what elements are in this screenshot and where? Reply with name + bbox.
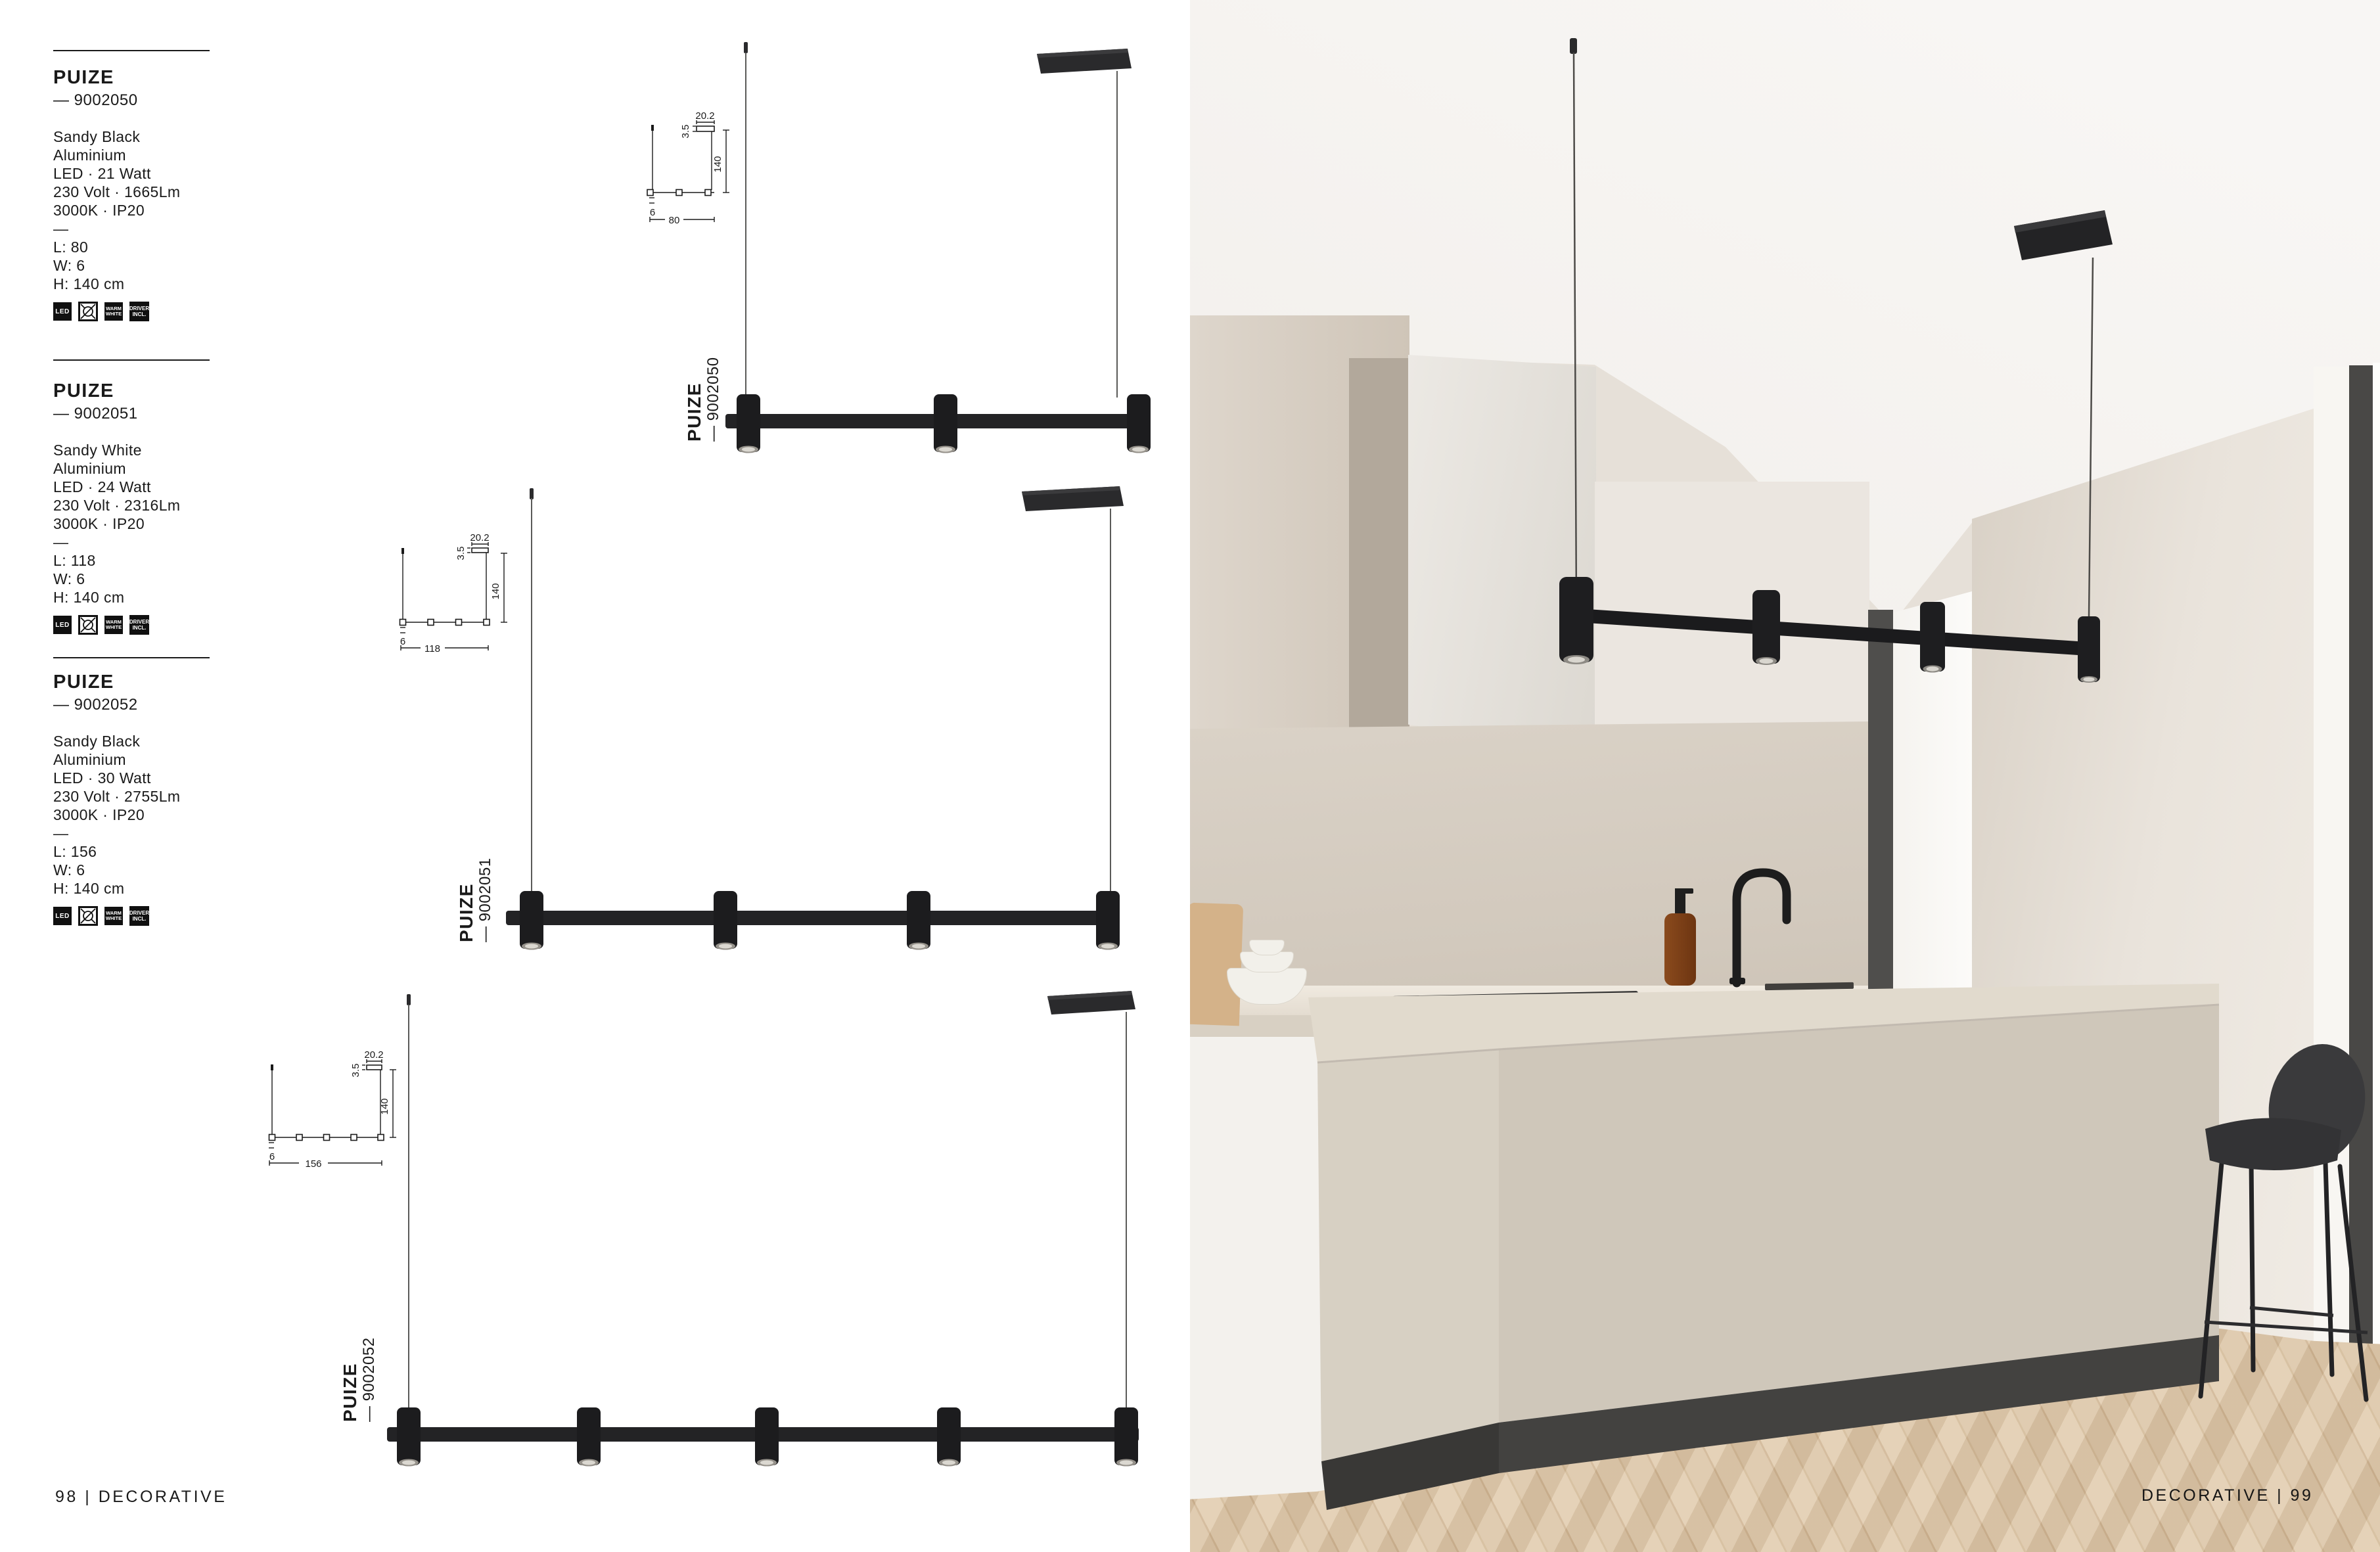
svg-text:118: 118 xyxy=(424,643,440,654)
driver-included-icon: DRIVER INCL. xyxy=(129,302,149,321)
spec-separator: — xyxy=(53,824,336,842)
led-icon: LED xyxy=(53,616,72,634)
certification-badges: LED WARM WHITE DRIVER INCL. xyxy=(53,906,336,926)
spec-power: LED · 21 Watt xyxy=(53,164,336,183)
svg-text:6: 6 xyxy=(650,207,655,218)
warm-white-icon: WARM WHITE xyxy=(104,302,123,321)
spec-temperature: 3000K · IP20 xyxy=(53,806,336,824)
product-code: — 9002051 xyxy=(53,403,336,425)
spec-height: H: 140 cm xyxy=(53,588,336,606)
svg-text:156: 156 xyxy=(305,1158,321,1170)
bulb-crossed-icon xyxy=(78,906,98,926)
spec-finish: Sandy Black xyxy=(53,732,336,750)
spec-width: W: 6 xyxy=(53,570,336,588)
dimension-drawing-9002051: 20.2 3.5 140 118 6 xyxy=(384,531,516,656)
svg-text:80: 80 xyxy=(669,215,680,226)
product-block-9002050: PUIZE — 9002050 Sandy Black Aluminium LE… xyxy=(53,66,336,321)
warm-white-icon: WARM WHITE xyxy=(104,616,123,634)
divider-line xyxy=(53,359,210,361)
product-info-page: PUIZE — 9002050 Sandy Black Aluminium LE… xyxy=(0,0,1190,1552)
bulb-crossed-icon xyxy=(78,302,98,321)
spec-height: H: 140 cm xyxy=(53,879,336,898)
driver-included-icon: DRIVER INCL. xyxy=(129,615,149,635)
spec-finish: Sandy Black xyxy=(53,127,336,146)
svg-text:6: 6 xyxy=(400,636,405,647)
spec-length: L: 118 xyxy=(53,551,336,570)
spec-material: Aluminium xyxy=(53,750,336,769)
product-photo-9002051 xyxy=(499,486,1130,956)
spec-separator: — xyxy=(53,533,336,551)
render-label-9002052: PUIZE — 9002052 xyxy=(340,1337,378,1422)
photo-puize-pendant xyxy=(1190,0,2380,1552)
lifestyle-photo: DECORATIVE | 99 xyxy=(1190,0,2380,1552)
spec-width: W: 6 xyxy=(53,256,336,275)
spec-finish: Sandy White xyxy=(53,441,336,459)
spec-length: L: 80 xyxy=(53,238,336,256)
spec-height: H: 140 cm xyxy=(53,275,336,293)
spec-width: W: 6 xyxy=(53,861,336,879)
spec-material: Aluminium xyxy=(53,146,336,164)
certification-badges: LED WARM WHITE DRIVER INCL. xyxy=(53,615,336,635)
svg-text:3.5: 3.5 xyxy=(455,547,467,560)
svg-text:3.5: 3.5 xyxy=(350,1064,361,1078)
spec-electrical: 230 Volt · 2755Lm xyxy=(53,787,336,806)
svg-text:20.2: 20.2 xyxy=(470,532,489,543)
bulb-crossed-icon xyxy=(78,615,98,635)
spec-length: L: 156 xyxy=(53,842,336,861)
product-photo-9002052 xyxy=(378,989,1150,1478)
led-icon: LED xyxy=(53,302,72,321)
render-label-9002050: PUIZE — 9002050 xyxy=(685,357,723,442)
product-photo-9002050 xyxy=(710,39,1156,470)
spec-separator: — xyxy=(53,219,336,238)
svg-text:6: 6 xyxy=(269,1151,275,1162)
divider-line xyxy=(53,657,210,658)
catalog-spread: PUIZE — 9002050 Sandy Black Aluminium LE… xyxy=(0,0,2380,1552)
spec-power: LED · 24 Watt xyxy=(53,478,336,496)
divider-line xyxy=(53,50,210,51)
product-name: PUIZE xyxy=(53,670,336,694)
product-name: PUIZE xyxy=(53,66,336,89)
certification-badges: LED WARM WHITE DRIVER INCL. xyxy=(53,302,336,321)
page-number-right: DECORATIVE | 99 xyxy=(2141,1486,2313,1505)
spec-electrical: 230 Volt · 2316Lm xyxy=(53,496,336,514)
spec-material: Aluminium xyxy=(53,459,336,478)
render-label-9002051: PUIZE — 9002051 xyxy=(457,857,495,942)
product-block-9002052: PUIZE — 9002052 Sandy Black Aluminium LE… xyxy=(53,670,336,926)
spec-temperature: 3000K · IP20 xyxy=(53,514,336,533)
warm-white-icon: WARM WHITE xyxy=(104,907,123,925)
page-number-left: 98 | DECORATIVE xyxy=(55,1488,227,1507)
spec-electrical: 230 Volt · 1665Lm xyxy=(53,183,336,201)
product-name: PUIZE xyxy=(53,379,336,403)
spec-temperature: 3000K · IP20 xyxy=(53,201,336,219)
led-icon: LED xyxy=(53,907,72,925)
spec-power: LED · 30 Watt xyxy=(53,769,336,787)
product-block-9002051: PUIZE — 9002051 Sandy White Aluminium LE… xyxy=(53,379,336,635)
product-code: — 9002052 xyxy=(53,694,336,716)
driver-included-icon: DRIVER INCL. xyxy=(129,906,149,926)
svg-text:3.5: 3.5 xyxy=(680,125,691,139)
product-code: — 9002050 xyxy=(53,89,336,112)
